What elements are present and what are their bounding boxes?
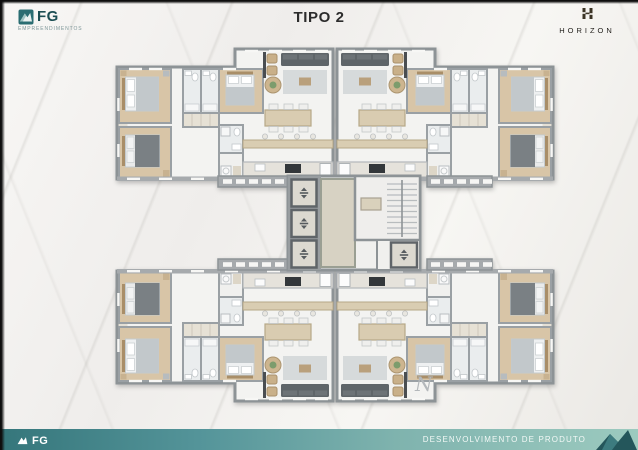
footer-fg-logo-icon <box>16 434 29 447</box>
unit-top-left <box>117 49 333 181</box>
unit-bottom-right <box>337 269 553 401</box>
slide-top-edge <box>0 0 638 4</box>
page-title: TIPO 2 <box>0 9 638 26</box>
horizon-logo-text: HORIZON <box>552 26 622 35</box>
footer-bar: FG DESENVOLVIMENTO DE PRODUTO <box>0 429 638 450</box>
horizon-logo-icon <box>581 8 594 19</box>
slide-left-edge <box>0 0 5 450</box>
footer-fg-logo: FG <box>16 434 48 447</box>
footer-mountain-icon <box>594 428 638 450</box>
floor-plan-image <box>115 40 555 418</box>
elevator-core <box>218 176 492 270</box>
horizon-logo: HORIZON <box>552 6 622 35</box>
footer-fg-logo-text: FG <box>32 435 48 447</box>
north-indicator: N <box>415 372 433 396</box>
unit-bottom-left <box>117 269 333 401</box>
footer-caption: DESENVOLVIMENTO DE PRODUTO <box>423 435 586 444</box>
fg-logo-tagline: EMPREENDIMENTOS <box>18 26 83 32</box>
unit-top-right <box>337 49 553 181</box>
presentation-slide: FG EMPREENDIMENTOS TIPO 2 HORIZON <box>0 0 638 450</box>
